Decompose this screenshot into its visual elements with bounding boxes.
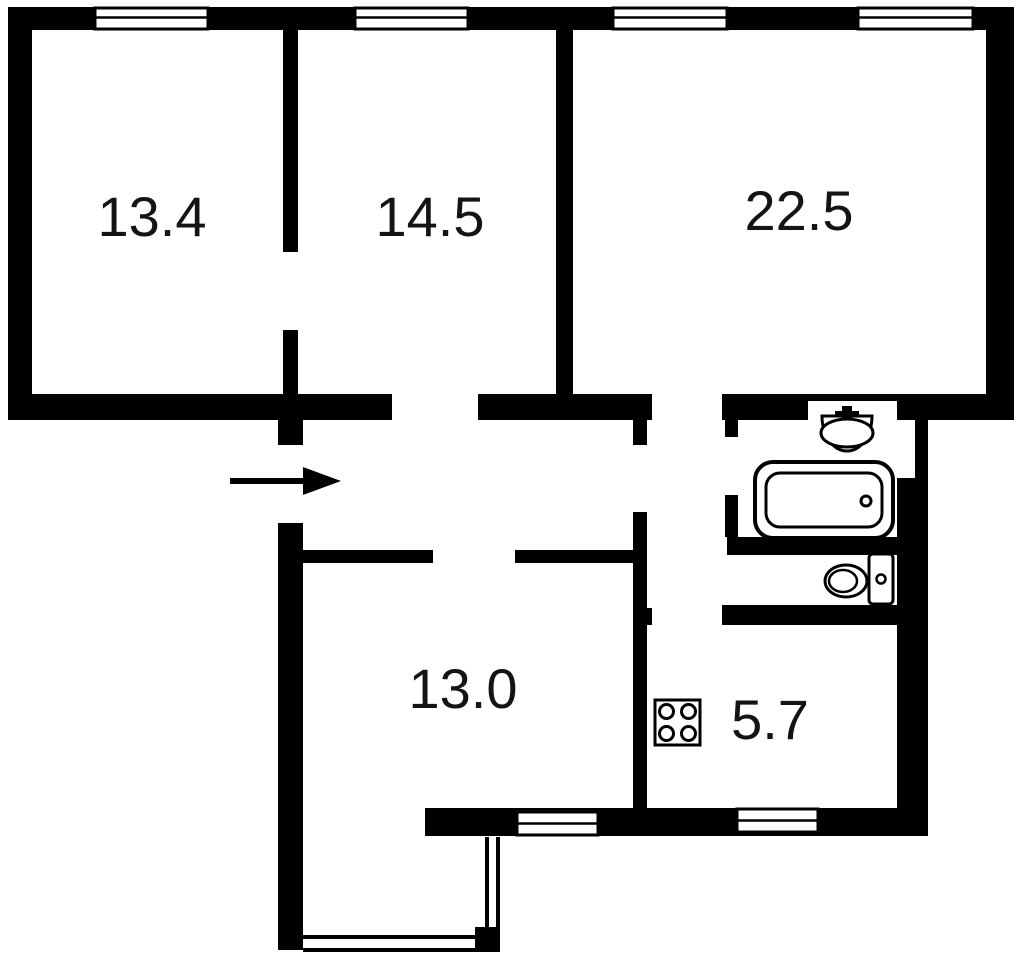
window-icon: [95, 8, 208, 29]
wall: [986, 7, 1014, 420]
floor-plan-svg: 13.4 14.5 22.5 13.0 5.7: [0, 0, 1023, 957]
stove-icon: [655, 700, 700, 745]
balcony-parapet: [303, 948, 475, 952]
wall: [478, 394, 652, 420]
wall: [722, 605, 897, 625]
wall: [283, 30, 298, 252]
wall: [915, 398, 928, 478]
wall: [722, 394, 808, 420]
wall: [8, 7, 32, 420]
wall: [556, 30, 573, 394]
wall: [897, 478, 928, 833]
wall: [647, 608, 652, 625]
window-icon: [737, 809, 818, 832]
window-icon: [355, 8, 468, 29]
balcony-parapet: [496, 837, 500, 929]
balcony-parapet: [485, 837, 489, 929]
wall: [515, 550, 647, 563]
room-area-label: 5.7: [731, 688, 809, 751]
wall: [725, 420, 738, 437]
wall: [278, 420, 303, 445]
floor-plan: 13.4 14.5 22.5 13.0 5.7: [0, 0, 1023, 957]
room-area-label: 14.5: [376, 185, 485, 248]
wall: [633, 420, 647, 445]
window-icon: [517, 812, 598, 835]
wall: [808, 394, 897, 401]
wall: [897, 394, 1014, 420]
wall: [725, 495, 738, 537]
wall: [303, 550, 433, 563]
balcony-parapet: [303, 935, 475, 939]
window-icon: [613, 8, 727, 29]
room-area-label: 13.0: [409, 657, 518, 720]
window-icon: [858, 8, 973, 29]
wall: [425, 808, 928, 836]
wall: [283, 330, 298, 394]
wall: [8, 394, 392, 420]
room-area-label: 22.5: [745, 179, 854, 242]
bathtub-icon: [755, 462, 893, 538]
room-area-label: 13.4: [98, 185, 207, 248]
wall: [475, 927, 500, 952]
wall: [278, 523, 303, 950]
